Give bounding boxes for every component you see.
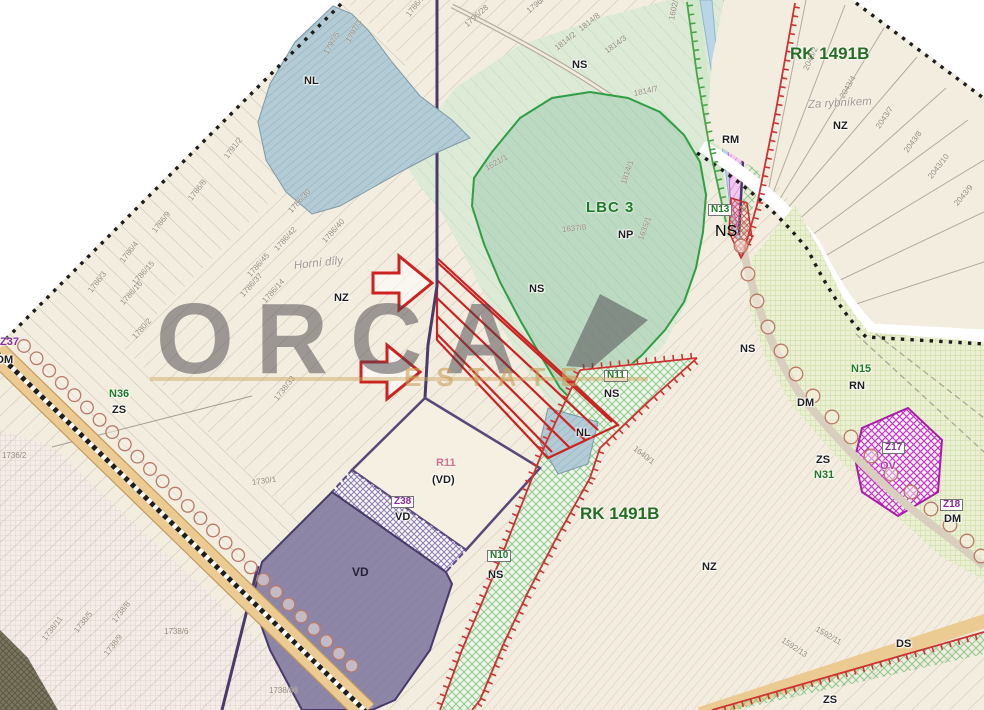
land-use-plan-map[interactable]: NLNSNSNPNZNZNZRMRNDMDMDMZSZSZSNSNSNSNSNL… [0,0,984,710]
map-canvas [0,0,984,710]
